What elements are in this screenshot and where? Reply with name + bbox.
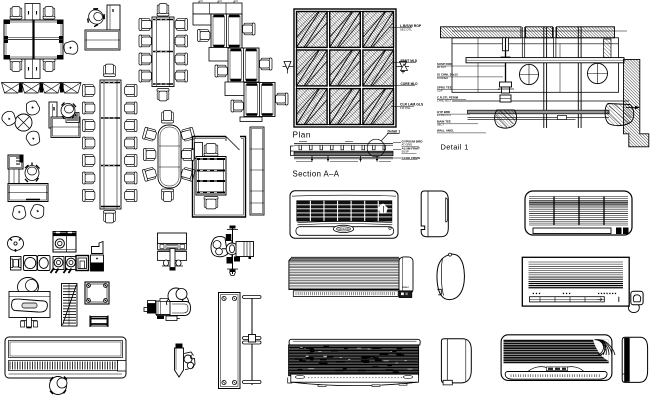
svg-text:WALL ANGL: WALL ANGL <box>437 129 454 133</box>
svg-text:Haier: Haier <box>402 285 409 289</box>
svg-text:GENERAL: GENERAL <box>338 228 350 231</box>
svg-text:W/ NUT: W/ NUT <box>437 65 447 69</box>
svg-text:Detail 1: Detail 1 <box>388 130 401 134</box>
svg-text:RUNNER: RUNNER <box>437 76 448 80</box>
svg-text:CLNG FRMG: CLNG FRMG <box>402 156 421 160</box>
svg-text:Plan: Plan <box>293 131 311 140</box>
svg-text:Detail 1: Detail 1 <box>441 143 469 152</box>
svg-text:Section A–A: Section A–A <box>293 170 340 179</box>
svg-text:SEC DTL: SEC DTL <box>400 28 412 32</box>
svg-text:FIX PNL: FIX PNL <box>400 106 411 110</box>
svg-text:FRMT MLD: FRMT MLD <box>401 59 418 63</box>
svg-text:SUSP: SUSP <box>402 150 410 154</box>
svg-text:CLIP: CLIP <box>437 89 443 93</box>
svg-text:CORE MLD: CORE MLD <box>401 82 419 86</box>
svg-text:12.5mm TH: 12.5mm TH <box>437 113 451 117</box>
svg-text:CHNL SECT: CHNL SECT <box>437 99 452 103</box>
svg-text:SECT: SECT <box>437 123 444 127</box>
